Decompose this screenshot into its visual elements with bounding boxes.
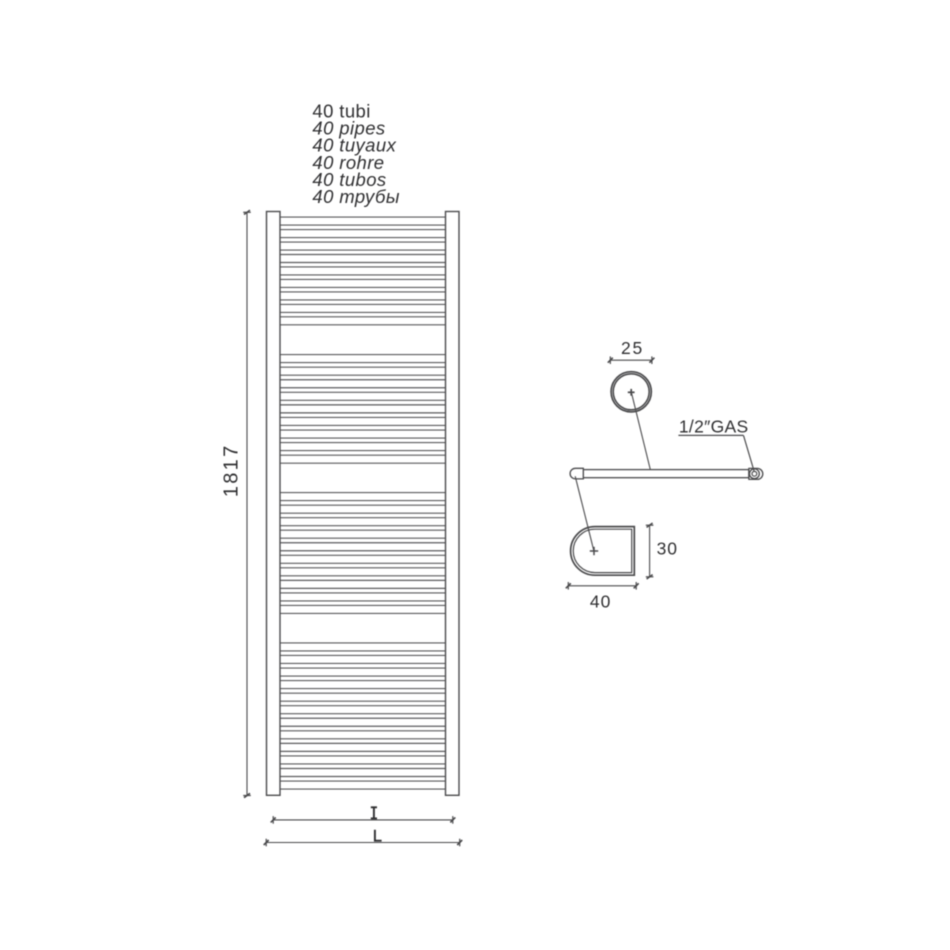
svg-text:1817: 1817 [221,443,243,497]
svg-text:40 трубы: 40 трубы [312,186,399,207]
svg-text:25: 25 [621,338,644,358]
svg-text:40: 40 [590,592,611,612]
svg-text:30: 30 [657,538,678,558]
svg-text:1/2″GAS: 1/2″GAS [679,416,749,436]
